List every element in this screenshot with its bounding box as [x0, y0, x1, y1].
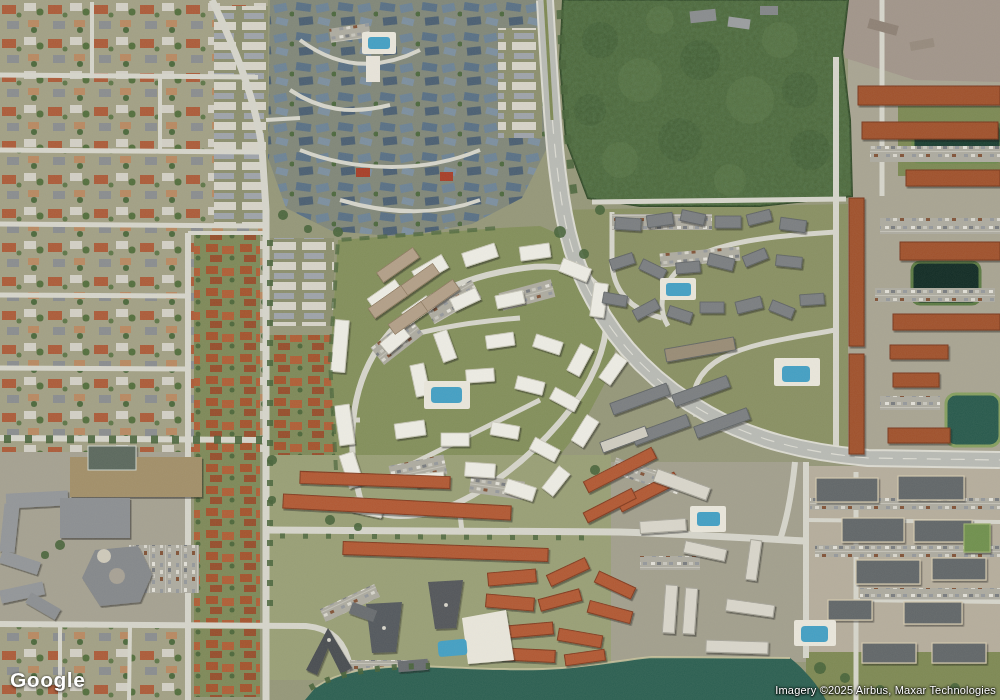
map-canvas[interactable] — [0, 0, 1000, 700]
imagery-grain — [0, 0, 1000, 700]
google-maps-satellite-view: Google Imagery ©2025 Airbus, Maxar Techn… — [0, 0, 1000, 700]
imagery-attribution: Imagery ©2025 Airbus, Maxar Technologies — [775, 684, 996, 696]
satellite-imagery — [0, 0, 1000, 700]
google-logo[interactable]: Google — [10, 668, 85, 692]
